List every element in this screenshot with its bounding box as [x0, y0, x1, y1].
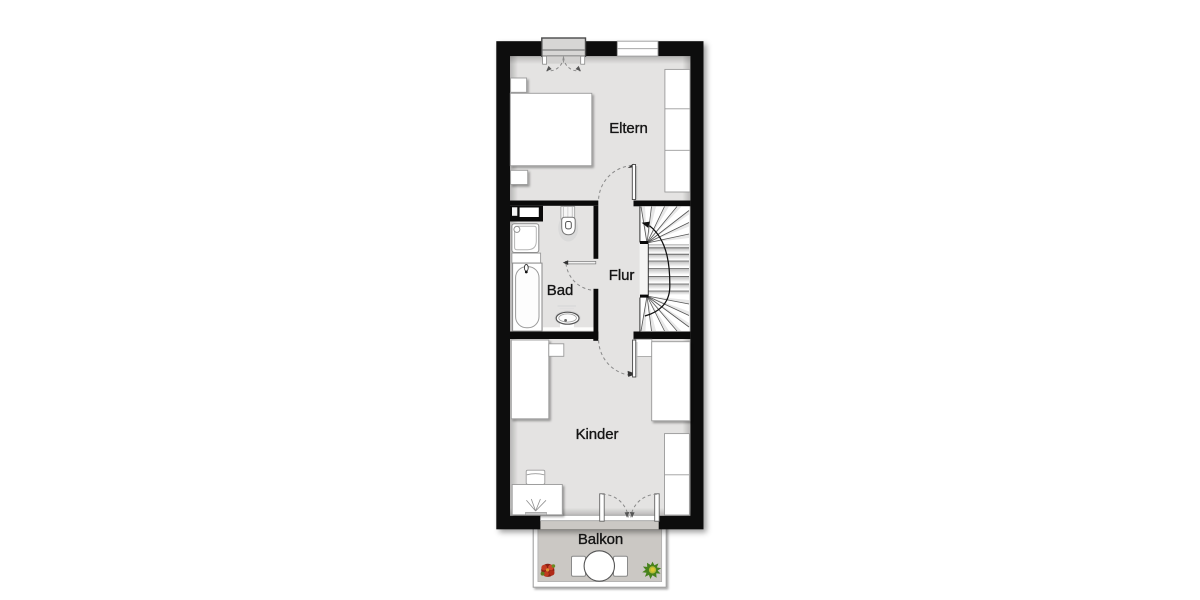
- svg-text:Kinder: Kinder: [576, 426, 619, 443]
- svg-text:Eltern: Eltern: [609, 120, 648, 137]
- svg-text:Bad: Bad: [547, 282, 573, 299]
- svg-text:Flur: Flur: [609, 267, 635, 284]
- svg-text:Balkon: Balkon: [578, 531, 623, 548]
